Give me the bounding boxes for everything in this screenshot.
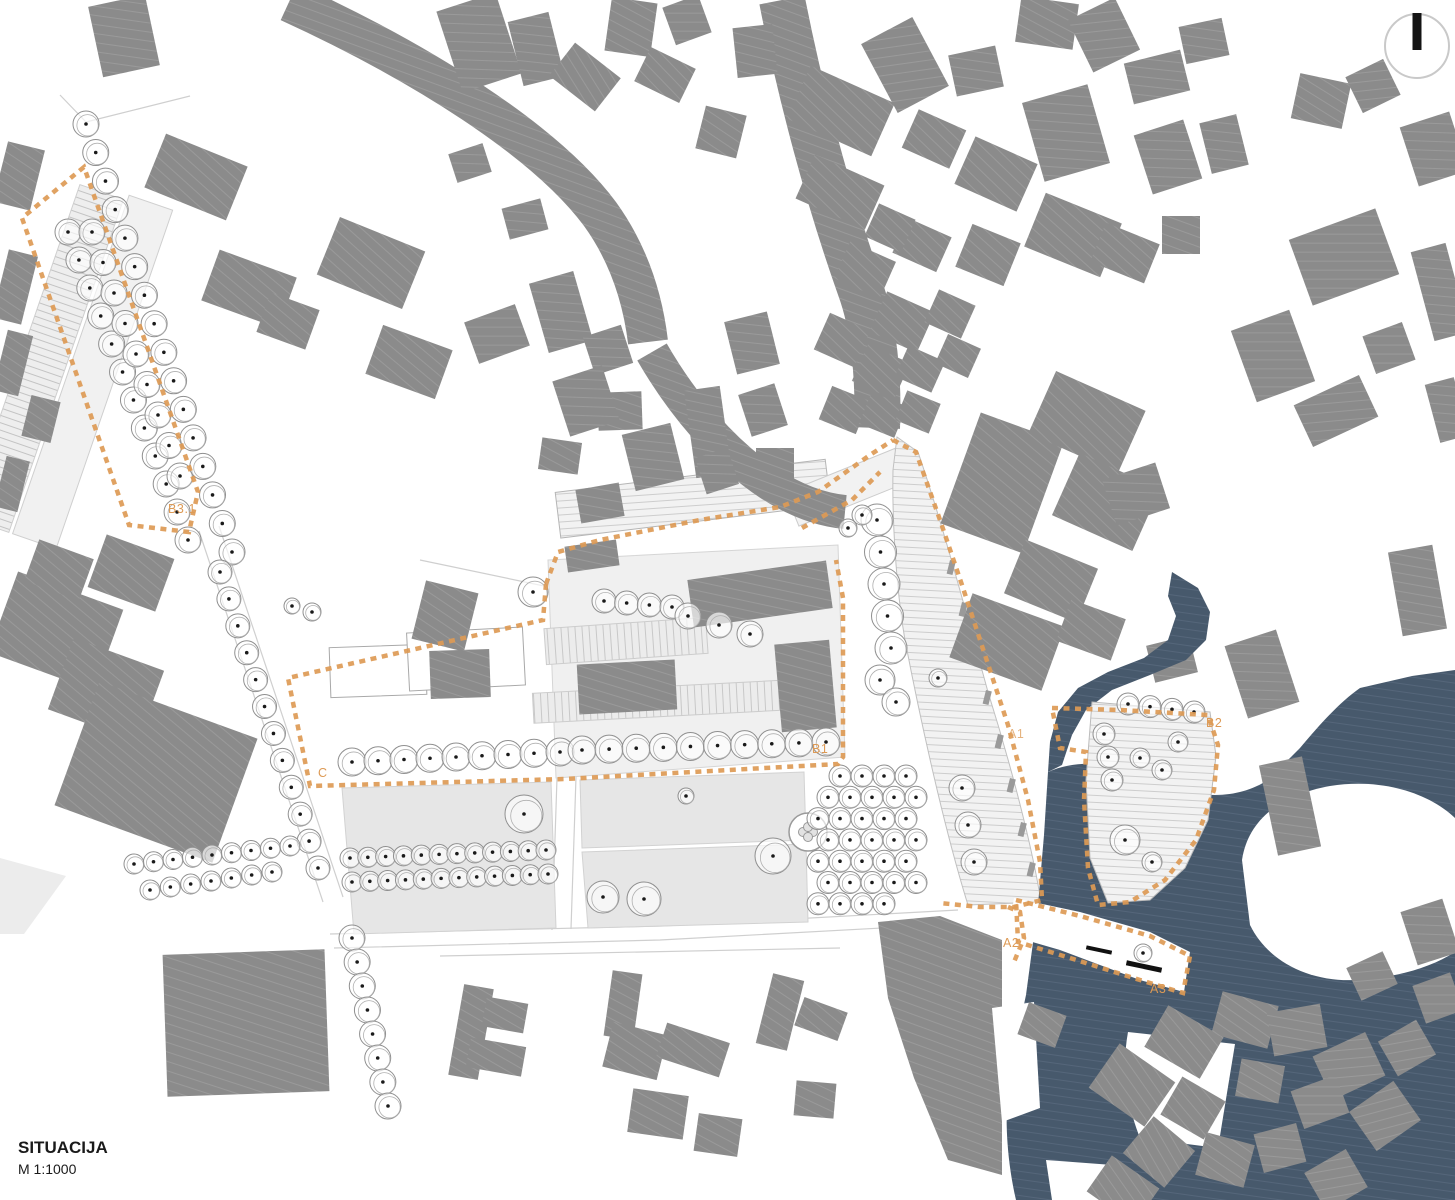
site-plan-drawing: B3.1 C B1 A1 B2 A2 A3 SITUACIJA M 1:1000 [0,0,1455,1200]
zone-label-a3: A3 [1150,982,1167,996]
zone-label-b1: B1 [812,742,829,756]
zone-label-b2: B2 [1206,716,1223,730]
zone-label-a1: A1 [1008,727,1025,741]
plan-scale: M 1:1000 [18,1161,77,1177]
north-arrow-icon [1413,13,1422,50]
site-plan-page: B3.1 C B1 A1 B2 A2 A3 SITUACIJA M 1:1000 [0,0,1455,1200]
zone-label-b31: B3.1 [168,502,196,516]
zone-label-c: C [318,766,328,780]
plan-title: SITUACIJA [18,1138,108,1157]
zone-label-a2: A2 [1003,936,1020,950]
north-indicator [1385,13,1449,78]
